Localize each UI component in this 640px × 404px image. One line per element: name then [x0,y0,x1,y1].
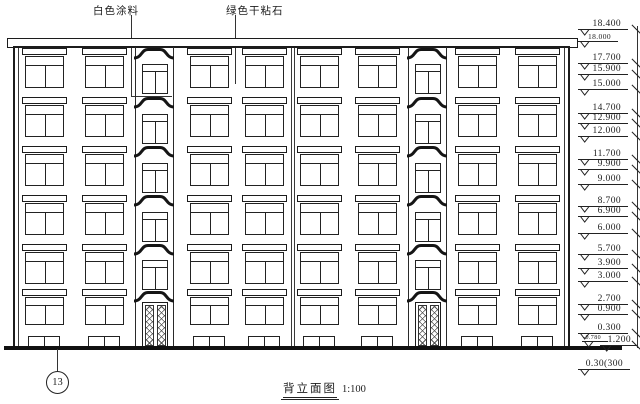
stair-window [415,260,441,290]
window [85,252,124,284]
window [25,203,64,235]
window-hood [187,195,232,202]
window-hood [297,97,342,104]
axis-label: 13 [52,377,63,388]
dimension-tick [632,310,640,320]
stair-window [415,114,441,144]
window [190,56,229,88]
window-hood [515,48,560,55]
dimension-tick [632,250,640,260]
window-mullion [378,114,379,136]
stair-window-mullion [155,267,156,289]
entry-door [415,302,441,348]
window-mullion [538,114,539,136]
window-mullion [265,65,266,87]
window-hood [355,289,400,296]
window-hood [187,289,232,296]
window-mullion [478,114,479,136]
window [300,252,339,284]
elevation-marker: 3.000 [578,270,628,281]
window-mullion [320,261,321,283]
window [25,252,64,284]
window-mullion [265,114,266,136]
window-mullion [378,163,379,185]
door-leaf-left [418,305,427,346]
stair-window [142,163,168,193]
window [358,252,397,284]
window [190,252,229,284]
window-hood [297,244,342,251]
window-hood [455,195,500,202]
elevation-marker: 6.000 [578,222,628,233]
axis-circle: 13 [46,371,69,394]
dimension-tick [632,85,640,95]
stair-window-mullion [155,71,156,93]
drawing-title: 背立面图 [283,380,337,398]
stair-bay-edge-left [408,47,409,347]
wall-inner-line-left [18,48,19,346]
elevation-marker: 9.000 [578,173,628,184]
window [190,203,229,235]
window-mullion [478,212,479,234]
stair-bay-edge-left [135,47,136,347]
elevation-marker: 9.900 [578,158,628,169]
elevation-value: 18.400 [592,19,621,29]
window-mullion [105,163,106,185]
window-mullion [265,261,266,283]
window [245,203,284,235]
window-mullion [105,261,106,283]
window-hood [22,244,67,251]
level-triangle-icon [602,345,612,352]
window [190,105,229,137]
window-mullion [378,212,379,234]
elevation-value: 0.30(300 [586,359,623,369]
window-hood [355,244,400,251]
dimension-tick [632,70,640,80]
dimension-tick [632,132,640,142]
elevation-value: 9.000 [598,174,621,184]
elevation-marker: 15.000 [578,78,628,89]
window-hood [455,289,500,296]
window-hood [82,289,127,296]
window [458,297,497,325]
window-hood [187,244,232,251]
window-mullion [538,65,539,87]
window [358,56,397,88]
window [300,203,339,235]
elevation-value: 12.900 [592,113,621,123]
window [518,297,557,325]
window [358,154,397,186]
stair-window-mullion [155,170,156,192]
dimension-tick [632,264,640,274]
window [25,56,64,88]
window-hood [242,289,287,296]
window-mullion [105,212,106,234]
window-mullion [320,212,321,234]
door-leaf-right [157,305,166,346]
window-hood [515,195,560,202]
window [518,56,557,88]
window [458,105,497,137]
window [245,297,284,325]
elevation-value: 3.000 [598,271,621,281]
elevation-value: 1.200 [608,335,631,345]
window-hood [187,97,232,104]
elevation-value: 15.000 [592,79,621,89]
stair-window [142,260,168,290]
elevation-marker: 12.000 [578,125,628,136]
material-label-white-paint: 白色涂料 [93,3,139,18]
elevation-marker: 12.900 [578,112,628,123]
window-mullion [538,261,539,283]
window-hood [455,244,500,251]
window-hood [242,97,287,104]
stair-window-mullion [428,219,429,241]
dimension-tick [632,277,640,287]
window [458,154,497,186]
window [300,297,339,325]
window-mullion [210,114,211,136]
window [358,297,397,325]
stair-window-mullion [428,170,429,192]
window-mullion [378,65,379,87]
window-hood [82,48,127,55]
stair-bay-edge-right [173,47,174,347]
window [85,56,124,88]
level-triangle-icon [580,281,590,288]
elevation-value: 6.900 [598,206,621,216]
window-hood [82,244,127,251]
window [245,105,284,137]
window [458,203,497,235]
door-leaf-left [145,305,154,346]
ground-line [4,346,622,350]
window-hood [515,146,560,153]
level-triangle-icon [580,184,590,191]
window-hood [242,244,287,251]
window [25,154,64,186]
elevation-value: 12.000 [592,126,621,136]
dimension-tick [632,180,640,190]
window-hood [515,289,560,296]
window-hood [22,146,67,153]
window [245,154,284,186]
window-hood [515,244,560,251]
window [518,203,557,235]
elevation-marker: 1.200 [600,334,638,345]
window-mullion [45,163,46,185]
window [518,154,557,186]
elevation-marker: 17.700 [578,52,628,63]
window-mullion [265,212,266,234]
window-hood [455,97,500,104]
stair-window [142,212,168,242]
window-hood [242,195,287,202]
dimension-tick [632,202,640,212]
window-hood [22,195,67,202]
window-mullion [45,305,46,324]
elevation-value: 3.900 [598,258,621,268]
elevation-marker: 6.900 [578,205,628,216]
dimension-tick [632,155,640,165]
window-hood [82,97,127,104]
elevation-marker: 15.900 [578,63,628,74]
dimension-tick [632,165,640,175]
window-mullion [320,163,321,185]
window [85,297,124,325]
window [25,105,64,137]
window-hood [187,146,232,153]
drawing-scale: 1:100 [342,384,366,395]
window [25,297,64,325]
window [300,56,339,88]
stair-window [415,212,441,242]
unit-separation-line-2 [294,48,295,346]
window-mullion [538,212,539,234]
window-mullion [210,212,211,234]
stair-window [142,64,168,94]
elevation-marker: 0.900 [578,303,628,314]
window-mullion [105,305,106,324]
stair-window-mullion [155,219,156,241]
level-triangle-icon [580,136,590,143]
unit-separation-line [291,48,292,346]
window-mullion [320,65,321,87]
window [518,252,557,284]
window-hood [22,289,67,296]
level-triangle-icon [580,89,590,96]
window-mullion [210,261,211,283]
door-leaf-right [430,305,439,346]
level-triangle-icon [584,341,594,348]
window [458,252,497,284]
elevation-value: 9.900 [598,159,621,169]
window-mullion [265,163,266,185]
elevation-value: 0.900 [598,304,621,314]
window-hood [242,48,287,55]
window-mullion [45,65,46,87]
window-hood [187,48,232,55]
dimension-tick [632,229,640,239]
stair-window [415,64,441,94]
window-mullion [45,212,46,234]
window-mullion [105,114,106,136]
window-mullion [105,65,106,87]
window [458,56,497,88]
window-hood [355,48,400,55]
window-mullion [265,305,266,324]
elevation-marker: 18.000 [578,30,618,41]
window-mullion [378,261,379,283]
dimension-tick [632,59,640,69]
window [85,203,124,235]
elevation-marker: 18.400 [578,18,628,29]
dimension-tick [632,25,640,35]
elevation-marker: 0.30(300 [578,358,630,369]
window-hood [355,97,400,104]
title-block: 背立面图 1:100 [283,380,366,398]
window-hood [22,97,67,104]
window-hood [355,195,400,202]
window-hood [297,48,342,55]
window-hood [455,146,500,153]
window [358,203,397,235]
window-hood [242,146,287,153]
level-triangle-icon [580,369,590,376]
window [245,56,284,88]
window-hood [455,48,500,55]
stair-window-mullion [428,71,429,93]
window [300,105,339,137]
window [190,297,229,325]
level-triangle-icon [580,233,590,240]
elevation-marker: 3.900 [578,257,628,268]
window-mullion [378,305,379,324]
window-mullion [320,305,321,324]
window-mullion [210,65,211,87]
elevation-value: 6.000 [598,223,621,233]
window-mullion [210,305,211,324]
wall-inner-line-right [564,48,565,346]
stair-window-mullion [428,121,429,143]
window-hood [82,146,127,153]
stair-window [142,114,168,144]
axis-line [57,349,58,372]
window [518,105,557,137]
window [190,154,229,186]
dimension-tick [632,212,640,222]
dimension-tick [632,119,640,129]
window-mullion [478,261,479,283]
window-mullion [478,65,479,87]
window [85,105,124,137]
elevation-value: 5.700 [598,244,621,254]
elevation-value: 18.000 [588,32,611,41]
window [245,252,284,284]
stair-window-mullion [155,121,156,143]
elevation-marker: 5.700 [578,243,628,254]
elevation-value: 17.700 [592,53,621,63]
window-mullion [45,261,46,283]
window-hood [297,289,342,296]
window-mullion [210,163,211,185]
stair-bay-edge-right [446,47,447,347]
stair-window [415,163,441,193]
entry-door [142,302,168,348]
window-hood [297,146,342,153]
window [300,154,339,186]
window-mullion [478,163,479,185]
window-hood [515,97,560,104]
window-mullion [538,163,539,185]
elevation-value: 15.900 [592,64,621,74]
elevation-drawing: 白色涂料 绿色干粘石 13 18.40018.00017.70015.90015… [0,0,640,404]
window-mullion [45,114,46,136]
window-mullion [478,305,479,324]
window-mullion [320,114,321,136]
level-triangle-icon [580,314,590,321]
level-triangle-icon [580,41,590,48]
window-hood [355,146,400,153]
window [358,105,397,137]
window [85,154,124,186]
dimension-tick [632,300,640,310]
dimension-tick [632,109,640,119]
window-hood [22,48,67,55]
stair-window-mullion [428,267,429,289]
window-mullion [538,305,539,324]
window-hood [297,195,342,202]
window-hood [82,195,127,202]
